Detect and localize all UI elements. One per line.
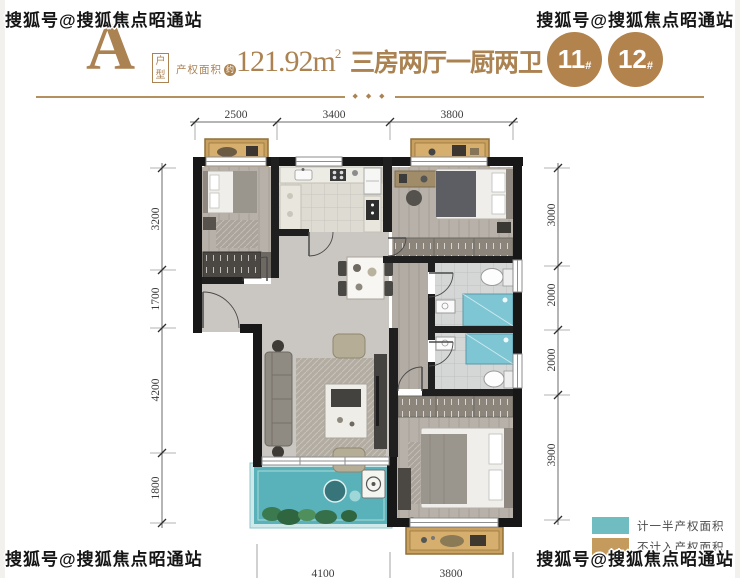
watermark-bottom-left: 搜狐号@搜狐焦点昭通站 <box>5 545 203 570</box>
dim-left-4: 1800 <box>150 476 162 499</box>
nightstand-icon-2 <box>497 222 511 233</box>
balcony-table-icon <box>324 480 346 502</box>
area-superscript: 2 <box>335 46 341 61</box>
watermark-top-right: 搜狐号@搜狐焦点昭通站 <box>536 6 734 31</box>
rug-texture <box>216 220 258 248</box>
unit-type-tag: 户型 <box>152 53 169 83</box>
window-bay-top-left <box>206 157 266 166</box>
floor-plan: 2500 3400 3800 3200 1700 4200 1800 3000 … <box>0 0 740 578</box>
dim-right-2: 2000 <box>546 283 558 306</box>
window-bay-top-right <box>411 157 487 166</box>
building-suffix: # <box>647 60 653 72</box>
wardrobe-icon-1 <box>203 252 271 278</box>
approx-badge: 约 <box>224 64 236 76</box>
sofa-icon <box>265 340 292 458</box>
window-balcony-slider <box>262 457 389 465</box>
dimension-right: 3000 2000 2000 3900 <box>544 163 570 525</box>
area-label: 产权面积 <box>176 62 222 77</box>
dim-top-1: 2500 <box>225 109 248 121</box>
divider-line-right <box>395 96 704 98</box>
building-suffix: # <box>585 60 591 72</box>
washing-machine-icon <box>362 470 385 498</box>
dim-left-2: 1700 <box>150 287 162 310</box>
fridge-icon <box>364 168 381 194</box>
divider-line-left <box>36 96 345 98</box>
dimension-top: 2500 3400 3800 <box>190 109 518 140</box>
legend-item-half-area: 计一半产权面积 <box>592 517 725 534</box>
dim-right-4: 3900 <box>546 443 558 466</box>
bed-master-icon <box>421 428 513 508</box>
shower-icon-1 <box>463 294 513 326</box>
window-bay-south <box>410 518 498 527</box>
building-number: 11 <box>558 44 586 75</box>
wardrobe-icon-master <box>398 396 513 417</box>
toilet-icon-2 <box>484 371 513 388</box>
header-divider: ◆ ◆ ◆ <box>36 93 704 100</box>
nightstand-icon <box>203 217 216 230</box>
tv-console-icon <box>374 354 387 449</box>
legend-label-half-area: 计一半产权面积 <box>637 518 725 534</box>
balcony-south <box>250 463 392 528</box>
sink-icon-1 <box>436 300 455 313</box>
dim-bottom-2: 3800 <box>440 568 463 578</box>
rooms-title: 三房两厅一厨两卫 <box>350 50 542 78</box>
coffee-table-icon <box>325 384 367 438</box>
watermark-top-left: 搜狐号@搜狐焦点昭通站 <box>5 6 203 31</box>
area-label-row: 产权面积 约 <box>176 62 236 77</box>
bed-medium-icon <box>436 169 513 219</box>
dim-left-3: 4200 <box>150 378 162 401</box>
bay-window-south <box>406 527 503 554</box>
dim-left-1: 3200 <box>150 207 162 230</box>
area-value: 121.92m2 <box>236 47 340 77</box>
bed-small-icon <box>203 171 257 213</box>
shower-icon-2 <box>466 334 513 364</box>
wardrobe-icon-2 <box>394 238 513 259</box>
toilet-icon-1 <box>481 269 513 287</box>
balcony-stool-icon <box>350 491 361 502</box>
dim-right-1: 3000 <box>546 203 558 226</box>
legend-swatch-teal <box>592 517 629 534</box>
building-badge-12: 12 # <box>608 32 663 87</box>
window-bath-2 <box>513 354 522 388</box>
armchair-icon-top <box>333 334 365 358</box>
building-number: 12 <box>618 44 647 75</box>
dimension-left: 3200 1700 4200 1800 <box>150 163 176 528</box>
window-bath-1 <box>513 260 522 292</box>
dim-bottom-1: 4100 <box>312 568 335 578</box>
dim-right-3: 2000 <box>546 348 558 371</box>
dim-top-2: 3400 <box>323 109 346 121</box>
area-number: 121.92m <box>236 45 335 78</box>
divider-diamonds-ornament: ◆ ◆ ◆ <box>352 93 387 100</box>
page: 2500 3400 3800 3200 1700 4200 1800 3000 … <box>0 0 740 578</box>
building-badge-11: 11 # <box>547 32 602 87</box>
window-kitchen <box>296 157 342 166</box>
dim-top-3: 3800 <box>441 109 464 121</box>
dresser-icon-master <box>398 468 411 510</box>
watermark-bottom-right: 搜狐号@搜狐焦点昭通站 <box>536 545 734 570</box>
